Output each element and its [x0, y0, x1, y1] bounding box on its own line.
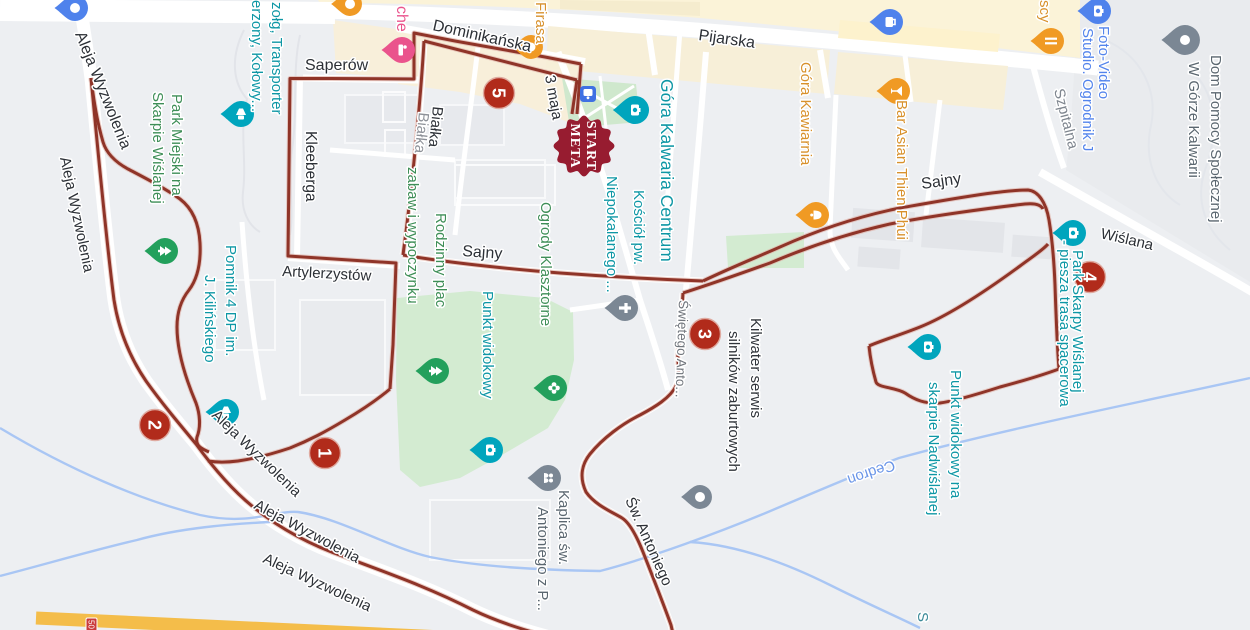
svg-text:START: START — [583, 121, 598, 171]
svg-text:2: 2 — [145, 420, 165, 430]
svg-text:META: META — [567, 124, 582, 169]
svg-text:Rodzinny plac: Rodzinny plac — [432, 213, 449, 308]
svg-text:skarpie Nadwiślanej: skarpie Nadwiślanej — [925, 382, 942, 515]
svg-text:Kilwater serwis: Kilwater serwis — [747, 318, 764, 418]
svg-text:erzony, Kołowy...: erzony, Kołowy... — [248, 0, 265, 112]
svg-text:Punkt widokowy: Punkt widokowy — [479, 291, 496, 399]
svg-text:zołg, Transporter: zołg, Transporter — [268, 2, 285, 115]
svg-text:Studio. Ogrodnik J: Studio. Ogrodnik J — [1079, 28, 1096, 151]
svg-text:Antoniego z P...: Antoniego z P... — [534, 507, 551, 611]
svg-text:Kaplica św.: Kaplica św. — [555, 490, 572, 565]
svg-text:Skarpie Wiślanej: Skarpie Wiślanej — [149, 92, 166, 204]
svg-text:Ogrody Klasztorne: Ogrody Klasztorne — [537, 202, 554, 326]
svg-text:Góra Kalwaria Centrum: Góra Kalwaria Centrum — [657, 79, 677, 262]
svg-text:Saperów: Saperów — [305, 57, 369, 74]
svg-text:Foto-Video: Foto-Video — [1095, 26, 1112, 99]
svg-text:- piesza trasa spacerowa: - piesza trasa spacerowa — [1056, 240, 1073, 407]
svg-text:W Górze Kalwarii: W Górze Kalwarii — [1185, 62, 1202, 178]
svg-text:J. Kilińskiego: J. Kilińskiego — [201, 275, 218, 363]
svg-text:scy: scy — [1036, 0, 1053, 23]
svg-text:50: 50 — [87, 620, 96, 629]
svg-text:Dom Pomocy Społecznej: Dom Pomocy Społecznej — [1207, 55, 1224, 223]
svg-text:Park Miejski na: Park Miejski na — [168, 94, 185, 196]
svg-text:silników zaburtowych: silników zaburtowych — [725, 331, 742, 472]
svg-text:5: 5 — [489, 88, 509, 98]
svg-text:che: che — [393, 6, 410, 32]
svg-text:Góra Kawiarnia: Góra Kawiarnia — [797, 62, 814, 166]
svg-text:Firasa: Firasa — [532, 2, 549, 44]
svg-text:Pomnik 4 DP im.: Pomnik 4 DP im. — [222, 245, 239, 356]
svg-text:Sajny: Sajny — [462, 243, 503, 263]
svg-text:3: 3 — [695, 329, 715, 339]
svg-text:Bar Asian Thien Phúi: Bar Asian Thien Phúi — [893, 100, 910, 240]
svg-text:Punkt widokowy na: Punkt widokowy na — [947, 370, 964, 499]
svg-text:Niepokalanego ...: Niepokalanego ... — [603, 176, 620, 293]
svg-text:Kościół pw.: Kościół pw. — [630, 190, 647, 265]
svg-text:Kleeberga: Kleeberga — [302, 131, 319, 202]
svg-text:zabaw i wypoczynku: zabaw i wypoczynku — [404, 167, 421, 304]
svg-text:1: 1 — [315, 448, 335, 458]
svg-text:S: S — [914, 612, 931, 622]
